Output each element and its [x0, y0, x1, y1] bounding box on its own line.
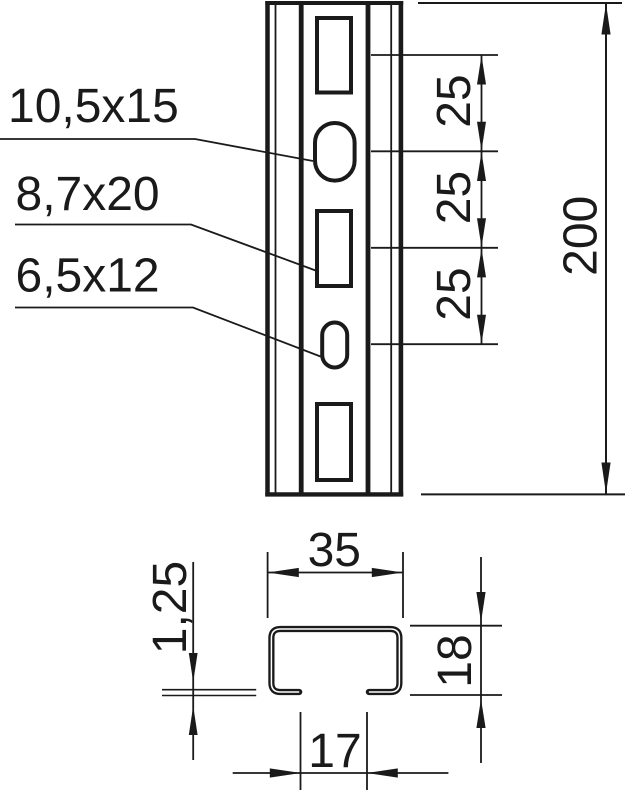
svg-text:1,25: 1,25	[144, 561, 197, 654]
svg-text:35: 35	[308, 524, 361, 577]
svg-text:18: 18	[429, 634, 482, 687]
svg-text:25: 25	[428, 74, 481, 127]
svg-text:17: 17	[308, 725, 361, 778]
svg-text:6,5x12: 6,5x12	[16, 250, 160, 303]
svg-text:8,7x20: 8,7x20	[16, 168, 160, 221]
svg-text:10,5x15: 10,5x15	[8, 80, 179, 133]
svg-text:200: 200	[555, 196, 608, 276]
svg-text:25: 25	[428, 267, 481, 320]
svg-text:25: 25	[428, 171, 481, 224]
